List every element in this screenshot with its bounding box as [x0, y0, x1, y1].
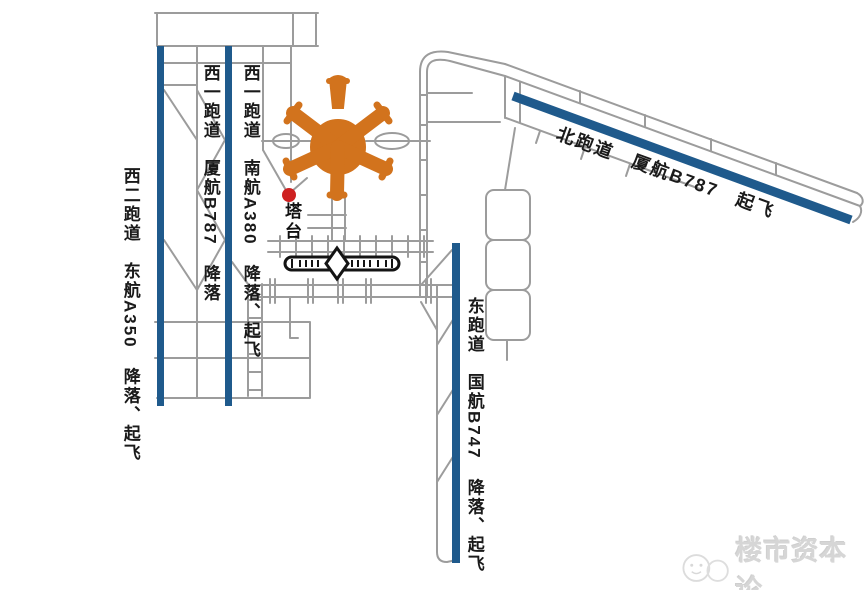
- runway-bars: [161, 46, 852, 563]
- terminal-star-icon: [286, 76, 390, 195]
- airport-runway-diagram: 西二跑道 东航A350 降落、起飞 西一跑道 厦航B787 降落 西一跑道 南航…: [0, 0, 865, 590]
- watermark-text: 楼市资本论: [735, 529, 865, 590]
- label-west-runway-1-southern: 西一跑道 南航A380 降落、起飞: [240, 64, 259, 360]
- watermark-logo-icon: [676, 547, 733, 589]
- watermark: 楼市资本论: [676, 529, 865, 590]
- label-east-runway: 东跑道 国航B747 降落、起飞: [464, 297, 483, 574]
- label-tower: 塔台: [279, 202, 304, 242]
- north-runway-bar: [513, 96, 851, 220]
- label-west-runway-2: 西二跑道 东航A350 降落、起飞: [120, 167, 139, 463]
- tower-marker-icon: [282, 188, 296, 202]
- label-west-runway-1-xiamen: 西一跑道 厦航B787 降落: [200, 64, 219, 303]
- taxiway-network: [155, 13, 863, 562]
